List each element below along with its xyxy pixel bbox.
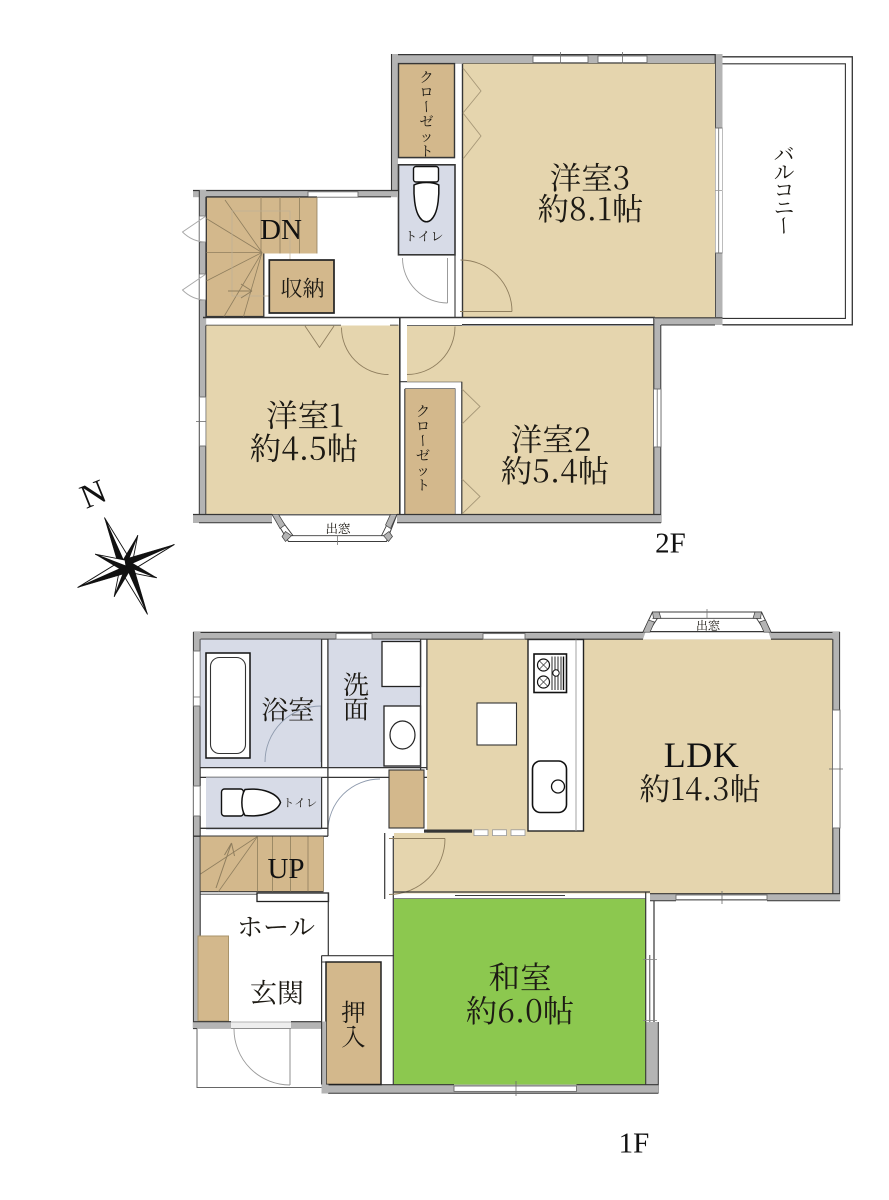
svg-text:LDK: LDK bbox=[664, 735, 740, 775]
svg-text:1F: 1F bbox=[619, 1127, 650, 1159]
svg-text:2F: 2F bbox=[655, 527, 686, 559]
svg-text:UP: UP bbox=[267, 853, 304, 885]
svg-text:DN: DN bbox=[260, 214, 302, 246]
